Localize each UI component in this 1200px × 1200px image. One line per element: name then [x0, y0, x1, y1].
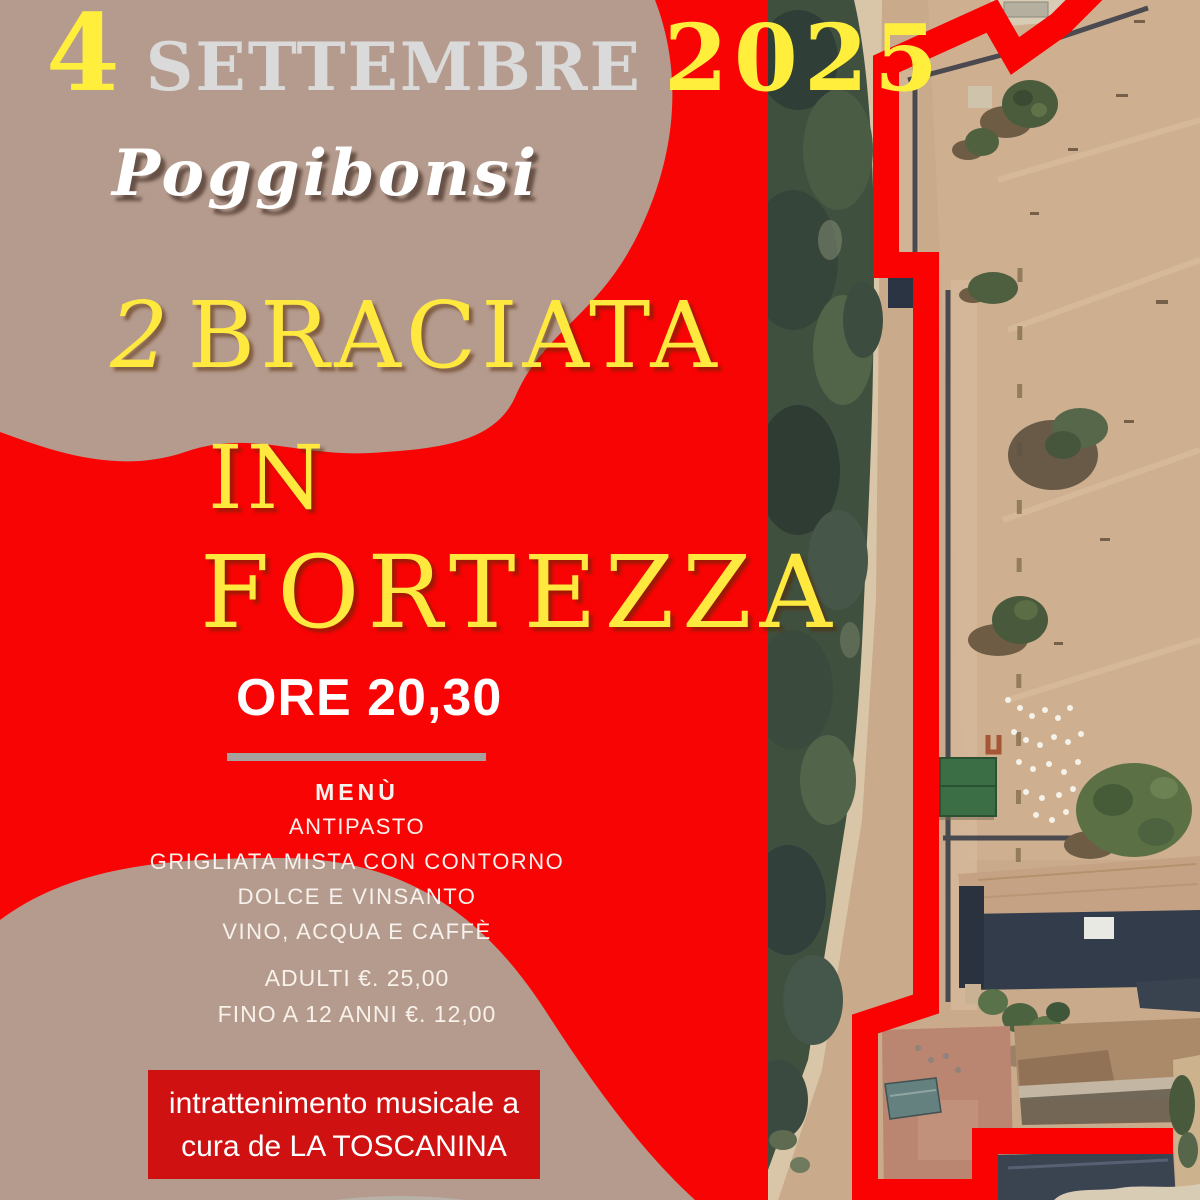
green-shed — [934, 758, 996, 820]
title-word1: BRACIATA — [188, 282, 722, 389]
date-month: SETTEMBRE — [146, 28, 642, 106]
date-year: 2025 — [664, 4, 944, 112]
event-poster: 4SETTEMBRE2025 Poggibonsi 2BRACIATA IN F… — [0, 0, 1200, 1200]
info-line2: cura de LA TOSCANINA — [148, 1125, 540, 1168]
event-time: ORE 20,30 — [236, 668, 502, 728]
info-line1: intrattenimento musicale a — [148, 1082, 540, 1125]
divider-line — [227, 753, 486, 761]
entertainment-info-box: intrattenimento musicale a cura de LA TO… — [148, 1070, 540, 1179]
menu-item: ANTIPASTO — [107, 809, 607, 844]
menu-section: MENÙ ANTIPASTO GRIGLIATA MISTA CON CONTO… — [107, 775, 607, 949]
price-adults: ADULTI €. 25,00 — [107, 960, 607, 996]
event-title-line1: 2BRACIATA — [110, 282, 722, 389]
menu-item: GRIGLIATA MISTA CON CONTORNO — [107, 844, 607, 879]
location-name: Poggibonsi — [112, 136, 539, 211]
event-title-line3: FORTEZZA — [200, 534, 840, 651]
menu-item: VINO, ACQUA E CAFFÈ — [107, 914, 607, 949]
price-section: ADULTI €. 25,00 FINO A 12 ANNI €. 12,00 — [107, 960, 607, 1032]
event-title-line2: IN — [208, 426, 328, 529]
menu-item: DOLCE E VINSANTO — [107, 879, 607, 914]
price-children: FINO A 12 ANNI €. 12,00 — [107, 996, 607, 1032]
date-day: 4 — [46, 0, 120, 115]
title-number: 2 — [110, 282, 174, 389]
date-line: 4SETTEMBRE2025 — [46, 0, 944, 115]
menu-heading: MENÙ — [107, 775, 607, 809]
